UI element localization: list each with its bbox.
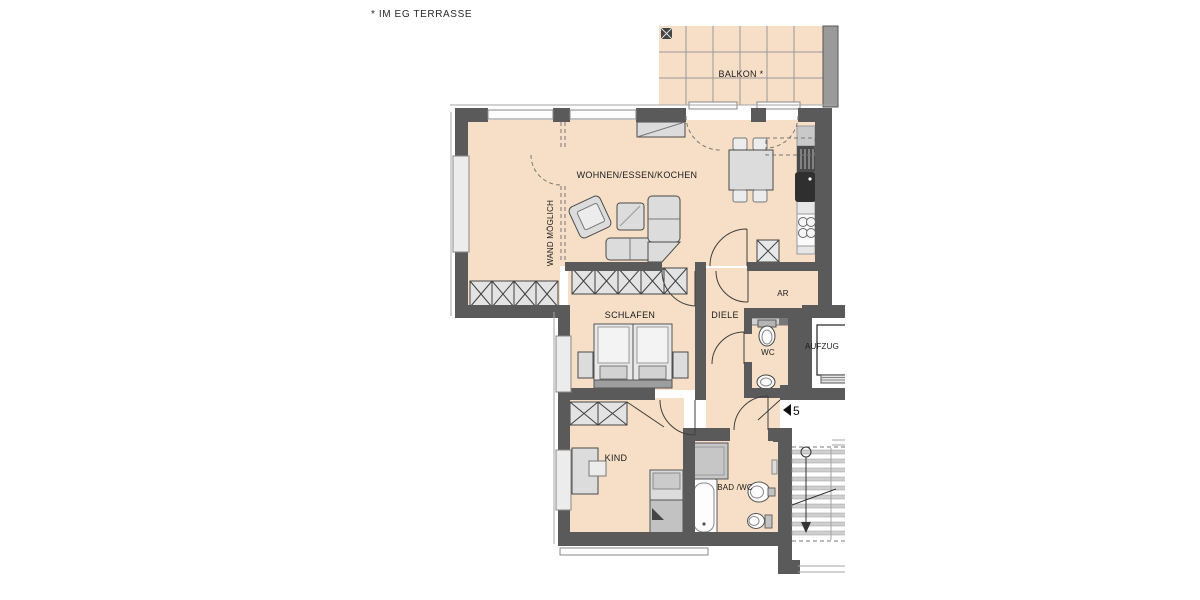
wardrobe-bedroom [572,268,687,294]
duvet [598,327,629,363]
wc-vent [779,318,788,325]
apartment-arrow-icon [783,404,791,416]
wardrobe-living [470,281,558,307]
label-wc: WC [761,348,775,357]
label-child: KIND [605,453,628,463]
pillow [639,366,666,379]
floor-hall [706,268,748,392]
label-bath: BAD /WC [717,483,753,492]
headboard [594,380,672,388]
label-balcony: BALKON * [719,69,764,79]
installation-shaft [757,240,779,262]
window-bedroom [556,336,571,392]
sideboard [637,122,685,137]
wc-toilet [758,320,776,346]
elevator-door [821,375,851,383]
apartment-number-marker: 5 [783,404,800,418]
pillow [600,366,627,379]
window-child [556,450,571,510]
kitchen-cabinet [797,126,815,146]
duvet [637,327,668,363]
kitchen-sink [795,172,816,202]
floor-plan-drawing: AUFZUG * IM EG TERRASSE BALKON * [0,0,1200,600]
balcony-floor [659,26,823,105]
chair [733,138,747,150]
double-bed [594,324,672,388]
plan-note: * IM EG TERRASSE [371,9,472,20]
balcony-side-wall [823,26,838,107]
chair [753,190,767,202]
desk-chair [589,461,606,476]
staircase [792,440,848,572]
wc-sink [757,375,775,389]
label-hall: DIELE [711,310,739,320]
floor-storage [748,266,820,308]
floor-plan-canvas: AUFZUG * IM EG TERRASSE BALKON * [0,0,1200,600]
coffee-table [617,203,644,230]
plan-clipped-group: AUFZUG * IM EG TERRASSE BALKON * [371,9,869,574]
window-bottom [560,548,708,555]
balcony [659,26,838,109]
shower [690,443,728,479]
kitchen-appliance [797,146,815,172]
burner [807,218,816,227]
bath-toilet [748,514,773,529]
label-living: WOHNEN/ESSEN/KOCHEN [577,170,698,180]
label-bedroom: SCHLAFEN [605,310,655,320]
nightstand-left [578,352,593,378]
elevator-label: AUFZUG [805,342,839,351]
chair [753,138,767,150]
apartment-number: 5 [793,404,800,418]
chair [733,190,747,202]
dining-table [729,150,773,190]
window-top-2 [570,110,636,119]
window-top-1 [488,110,553,119]
elevator: AUFZUG [805,318,869,388]
child-bed [650,470,683,534]
towel-rail [772,460,777,474]
window-left [453,156,469,252]
kitchen-sink-tap [808,177,811,180]
burner [807,229,816,238]
label-storage: AR [777,289,789,298]
label-possible-wall: WAND MÖGLICH [546,200,555,266]
nightstand-right [673,352,688,378]
